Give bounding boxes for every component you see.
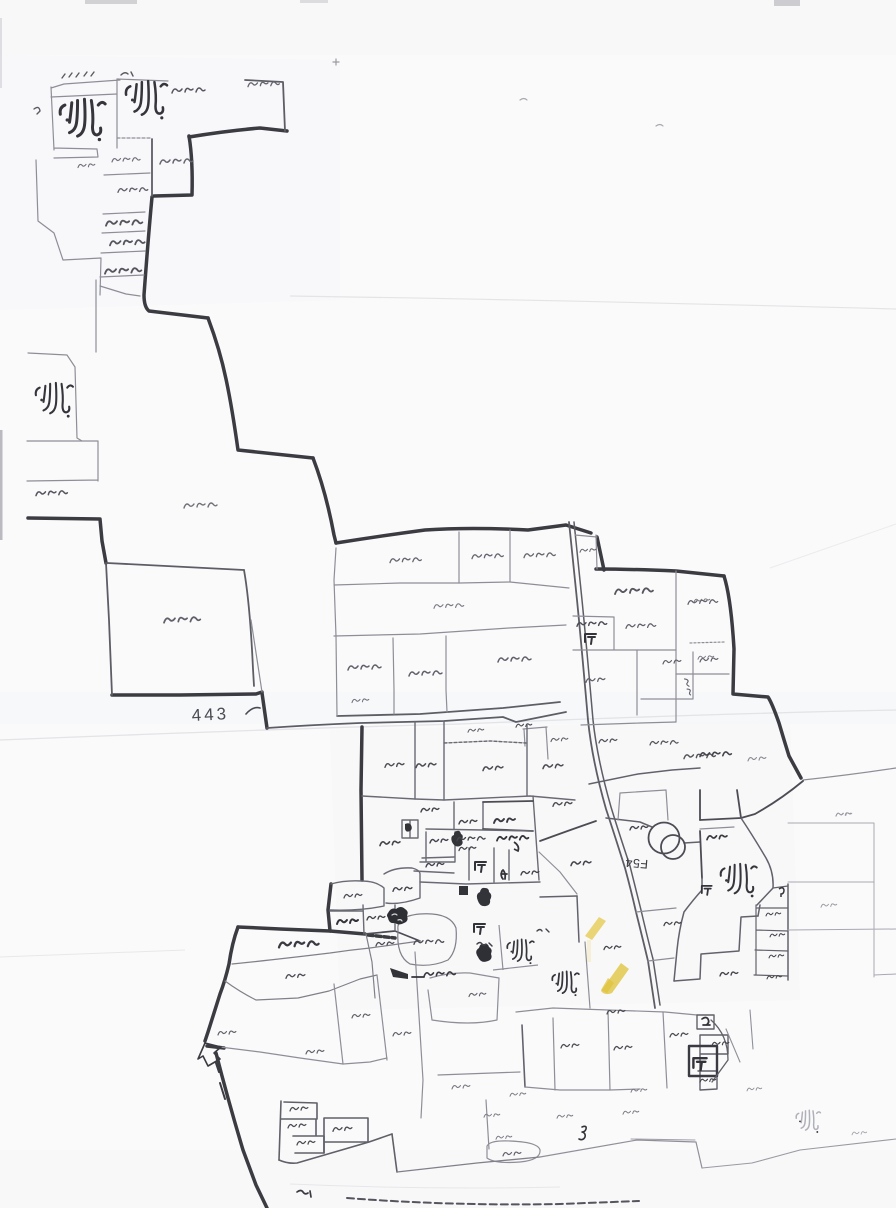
svg-text:443: 443 xyxy=(191,704,229,725)
svg-text:F54: F54 xyxy=(624,855,648,871)
